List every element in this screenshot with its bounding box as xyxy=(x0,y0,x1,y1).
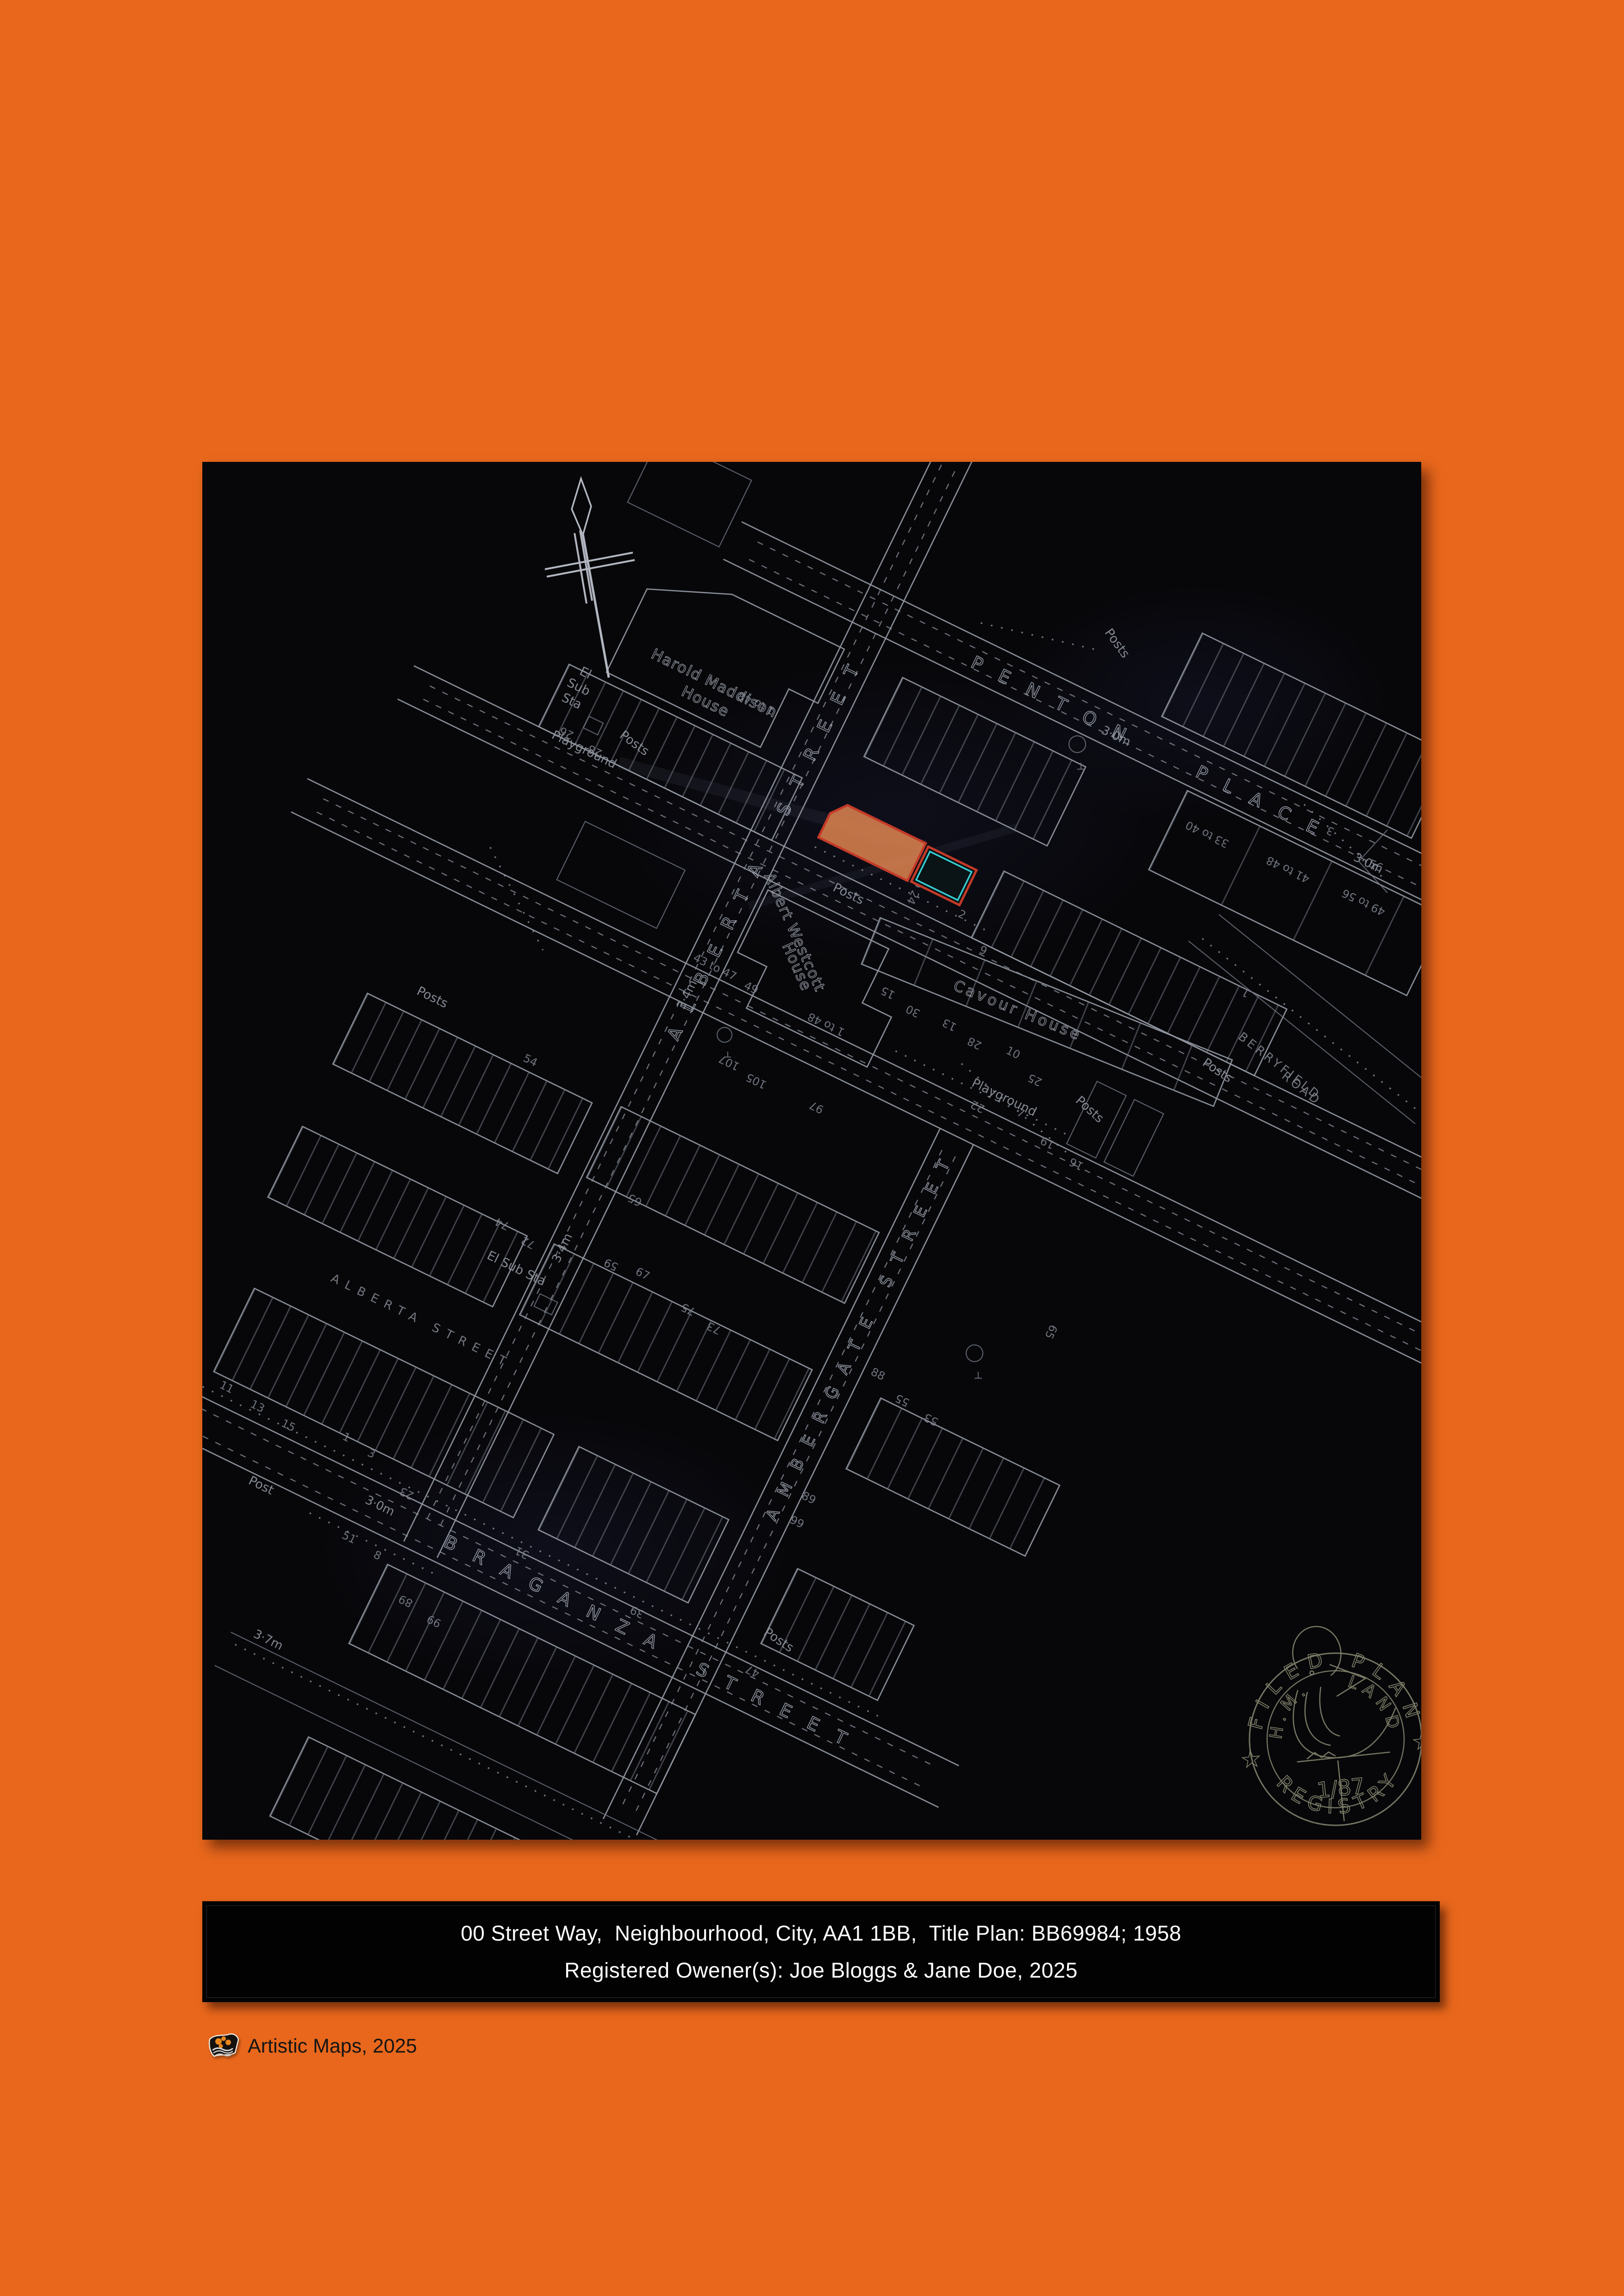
caption-address: 00 Street Way, Neighbourhood, City, AA1 … xyxy=(461,1921,1181,1946)
footer-credit: Artistic Maps, 2025 xyxy=(248,2035,417,2058)
artistic-maps-logo-icon xyxy=(207,2032,241,2060)
title-plan-map: PENTON PLACE STREET ALBERTA AMBERGATE ST… xyxy=(202,462,1421,1840)
stamp-star-left: ★ xyxy=(1240,1745,1262,1773)
footer: Artistic Maps, 2025 xyxy=(207,2032,417,2060)
caption-owners: Registered Owener(s): Joe Bloggs & Jane … xyxy=(564,1958,1078,1983)
stamp-number: 1/87 xyxy=(1316,1773,1366,1803)
poster-page: { "page": { "background_color": "#E8671C… xyxy=(0,0,1624,2296)
caption-bar: 00 Street Way, Neighbourhood, City, AA1 … xyxy=(202,1901,1440,2002)
caption-inner: 00 Street Way, Neighbourhood, City, AA1 … xyxy=(206,1905,1436,1998)
map-canvas: PENTON PLACE STREET ALBERTA AMBERGATE ST… xyxy=(202,462,1421,1840)
